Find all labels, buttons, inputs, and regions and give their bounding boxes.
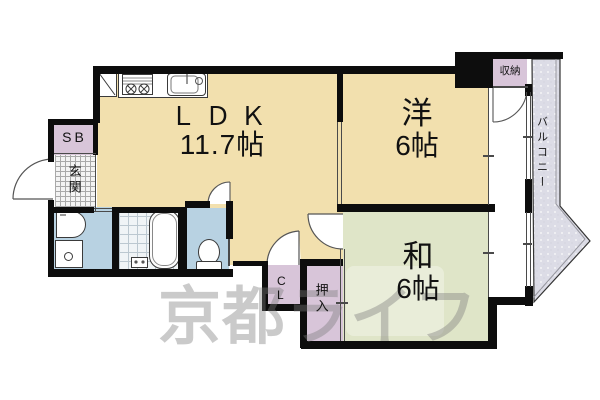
room-japanese-size: 6帖 — [345, 274, 491, 303]
room-japanese-label: 和 — [345, 241, 491, 274]
stove-hatch — [123, 78, 152, 84]
ldk-western-sliding-door — [341, 122, 342, 204]
japanese-label-block: 和 6帖 — [345, 241, 491, 303]
western-label-block: 洋 6帖 — [343, 98, 491, 160]
room-ldk-size: 11.7帖 — [120, 130, 325, 159]
wall-segment — [185, 201, 210, 208]
refrigerator-diagonal — [99, 73, 115, 95]
wall-segment — [337, 204, 495, 212]
wall-segment — [525, 286, 533, 306]
washroom-sliding-door — [94, 208, 112, 209]
oshiire-label: 押入 — [314, 283, 328, 315]
wall-segment — [48, 207, 94, 213]
room-western-label: 洋 — [343, 98, 491, 131]
wall-pillar-block — [455, 52, 493, 88]
wall-segment — [300, 259, 343, 266]
floorplan-canvas: 京都ライフ ＬＤＫ 11.7帖 洋 6帖 和 6帖 収納 バルコニー SB 玄関… — [0, 0, 600, 400]
sb-genkan-divider — [54, 153, 96, 154]
wall-segment — [112, 207, 187, 213]
shoe-box-label: SB — [52, 130, 97, 145]
window-tick — [523, 136, 532, 138]
room-western-size: 6帖 — [343, 131, 491, 160]
sink-basin — [171, 76, 198, 93]
balcony-window-japanese — [526, 212, 527, 287]
stove-burner-left-x — [128, 86, 135, 93]
cl-label: CL — [277, 274, 290, 303]
bath-faucet-knob2 — [141, 260, 144, 263]
window-tick — [523, 243, 532, 245]
sink-faucet — [196, 78, 203, 85]
wall-segment — [48, 119, 97, 125]
stove-burner-right-x — [141, 86, 148, 93]
ldk-western-sliding-door — [337, 122, 338, 204]
storage-label: 収納 — [493, 66, 527, 77]
entrance-door-swing — [13, 159, 53, 199]
wall-segment — [93, 66, 460, 74]
ldk-label-block: ＬＤＫ 11.7帖 — [120, 103, 325, 160]
balcony-window-japanese — [530, 212, 531, 287]
room-ldk-label: ＬＤＫ — [120, 103, 325, 130]
balcony-label: バルコニー — [535, 116, 547, 191]
wall-segment — [112, 207, 119, 277]
washroom-sliding-door — [94, 211, 112, 212]
shuno-bottom-line — [493, 86, 528, 88]
toilet-side-line — [228, 239, 230, 266]
wall-segment — [226, 201, 233, 239]
wall-segment — [93, 66, 100, 123]
wall-segment — [525, 179, 532, 213]
genkan-edge-line — [95, 155, 96, 212]
bath-faucet-knob — [134, 260, 137, 263]
entrance-label: 玄関 — [67, 164, 81, 196]
wall-segment — [48, 207, 54, 277]
